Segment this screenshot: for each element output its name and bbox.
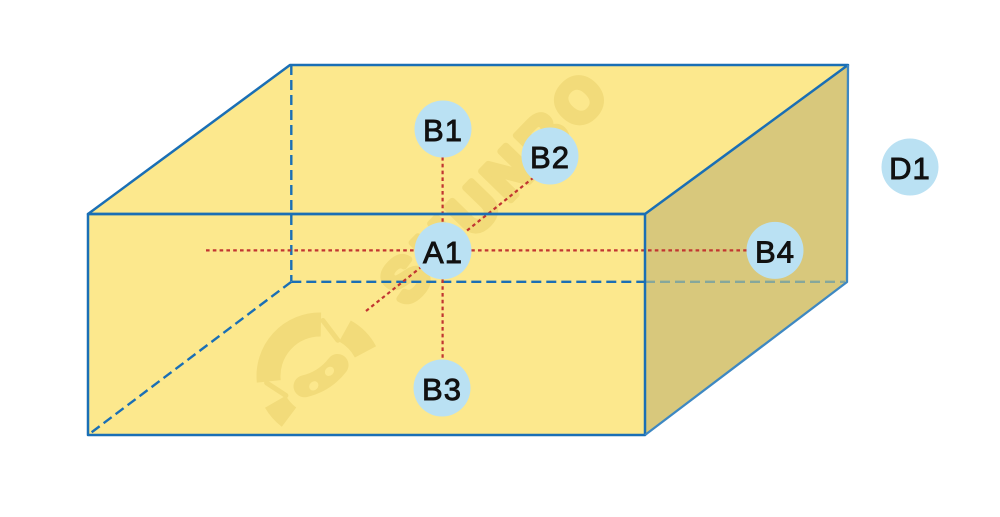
svg-text:A1: A1 <box>423 235 463 270</box>
svg-text:D1: D1 <box>889 151 931 186</box>
svg-text:B2: B2 <box>530 140 570 175</box>
svg-text:B4: B4 <box>755 234 795 269</box>
svg-text:B3: B3 <box>422 372 462 407</box>
svg-text:B1: B1 <box>423 113 463 148</box>
